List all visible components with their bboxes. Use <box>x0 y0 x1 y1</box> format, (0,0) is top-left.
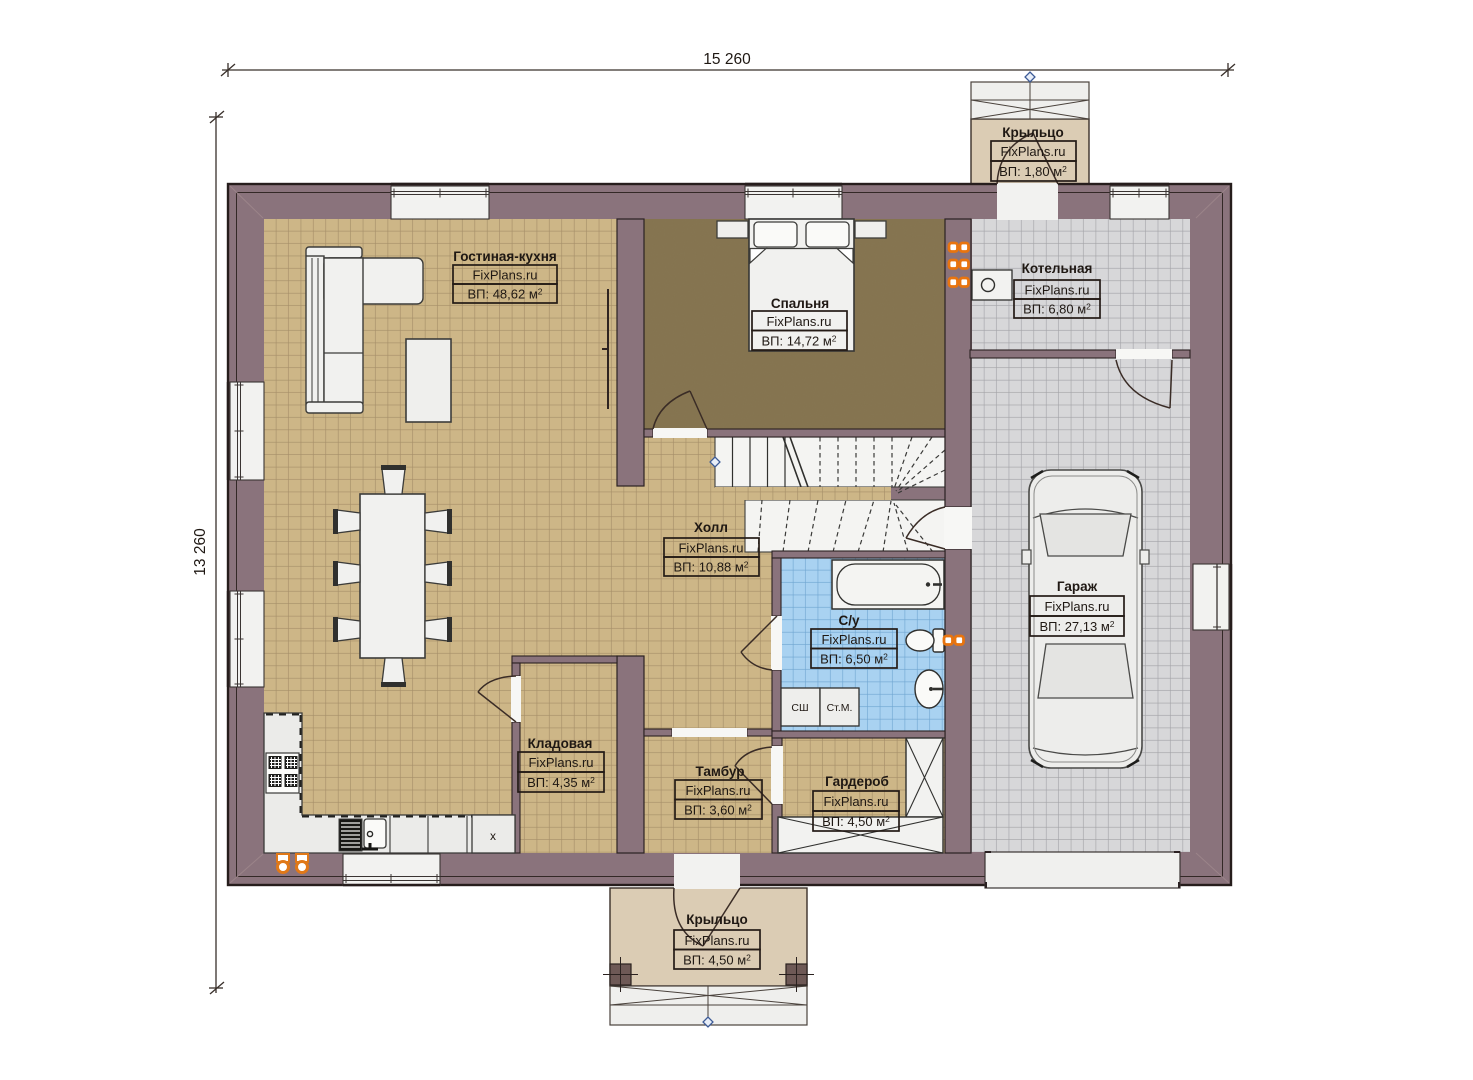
svg-text:ВП: 48,62 м2: ВП: 48,62 м2 <box>467 287 542 302</box>
svg-text:Котельная: Котельная <box>1022 261 1093 276</box>
svg-text:ВП: 14,72 м2: ВП: 14,72 м2 <box>761 334 836 349</box>
svg-text:FixPlans.ru: FixPlans.ru <box>528 755 593 770</box>
svg-text:Холл: Холл <box>694 520 728 535</box>
svg-text:13 260: 13 260 <box>192 528 209 576</box>
svg-text:ВП: 6,50 м2: ВП: 6,50 м2 <box>820 652 888 667</box>
svg-text:FixPlans.ru: FixPlans.ru <box>1044 599 1109 614</box>
svg-text:ВП: 6,80 м2: ВП: 6,80 м2 <box>1023 302 1091 317</box>
svg-text:FixPlans.ru: FixPlans.ru <box>684 933 749 948</box>
svg-text:15 260: 15 260 <box>703 51 751 68</box>
svg-text:Спальня: Спальня <box>771 296 829 311</box>
svg-text:FixPlans.ru: FixPlans.ru <box>472 268 537 283</box>
svg-text:Крыльцо: Крыльцо <box>1002 125 1063 140</box>
svg-text:FixPlans.ru: FixPlans.ru <box>1000 144 1065 159</box>
svg-text:ВП: 4,50 м2: ВП: 4,50 м2 <box>683 953 751 968</box>
svg-text:FixPlans.ru: FixPlans.ru <box>685 783 750 798</box>
svg-text:ВП: 4,35 м2: ВП: 4,35 м2 <box>527 775 595 790</box>
svg-text:FixPlans.ru: FixPlans.ru <box>678 541 743 556</box>
svg-text:ВП: 3,60 м2: ВП: 3,60 м2 <box>684 803 752 818</box>
svg-text:ВП: 10,88 м2: ВП: 10,88 м2 <box>673 560 748 575</box>
svg-text:Ст.М.: Ст.М. <box>827 702 853 714</box>
svg-text:Крыльцо: Крыльцо <box>686 912 747 927</box>
svg-text:x: x <box>490 829 496 843</box>
svg-text:СШ: СШ <box>791 702 808 714</box>
svg-text:Кладовая: Кладовая <box>528 736 593 751</box>
svg-text:FixPlans.ru: FixPlans.ru <box>821 632 886 647</box>
svg-text:FixPlans.ru: FixPlans.ru <box>823 794 888 809</box>
svg-text:Гостиная-кухня: Гостиная-кухня <box>453 249 556 264</box>
svg-text:ВП: 27,13 м2: ВП: 27,13 м2 <box>1039 619 1114 634</box>
svg-text:Тамбур: Тамбур <box>696 764 745 779</box>
svg-text:ВП: 1,80 м2: ВП: 1,80 м2 <box>999 164 1067 179</box>
svg-text:С/у: С/у <box>838 613 860 628</box>
svg-text:Гардероб: Гардероб <box>825 774 889 789</box>
svg-text:Гараж: Гараж <box>1057 579 1098 594</box>
svg-text:ВП: 4,50 м2: ВП: 4,50 м2 <box>822 814 890 829</box>
svg-text:FixPlans.ru: FixPlans.ru <box>766 314 831 329</box>
svg-text:FixPlans.ru: FixPlans.ru <box>1024 283 1089 298</box>
